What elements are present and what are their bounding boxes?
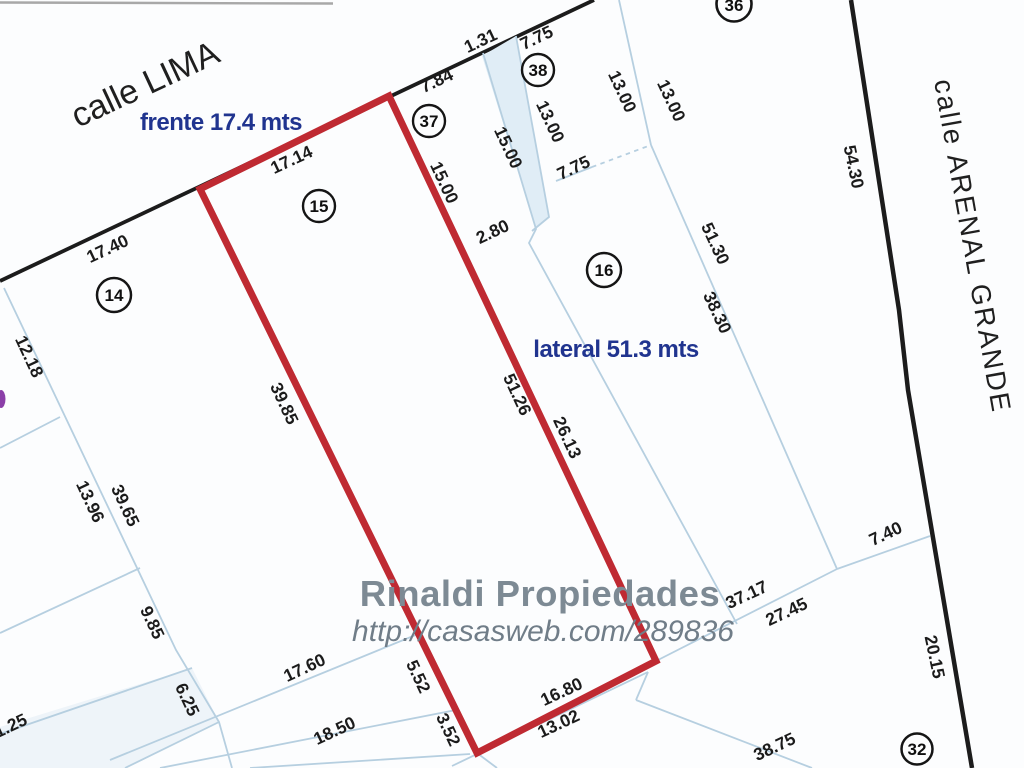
svg-text:16: 16: [595, 261, 614, 280]
svg-text:37: 37: [420, 112, 439, 131]
svg-text:frente 17.4 mts: frente 17.4 mts: [140, 109, 302, 136]
svg-text:15: 15: [310, 197, 329, 216]
svg-text:lateral 51.3 mts: lateral 51.3 mts: [533, 336, 699, 363]
svg-text:14: 14: [105, 286, 124, 305]
svg-text:Rinaldi Propiedades: Rinaldi Propiedades: [360, 573, 720, 614]
svg-text:32: 32: [908, 740, 927, 759]
svg-text:http://casasweb.com/289836: http://casasweb.com/289836: [352, 615, 734, 648]
svg-text:38: 38: [529, 61, 548, 80]
svg-text:36: 36: [725, 0, 744, 15]
